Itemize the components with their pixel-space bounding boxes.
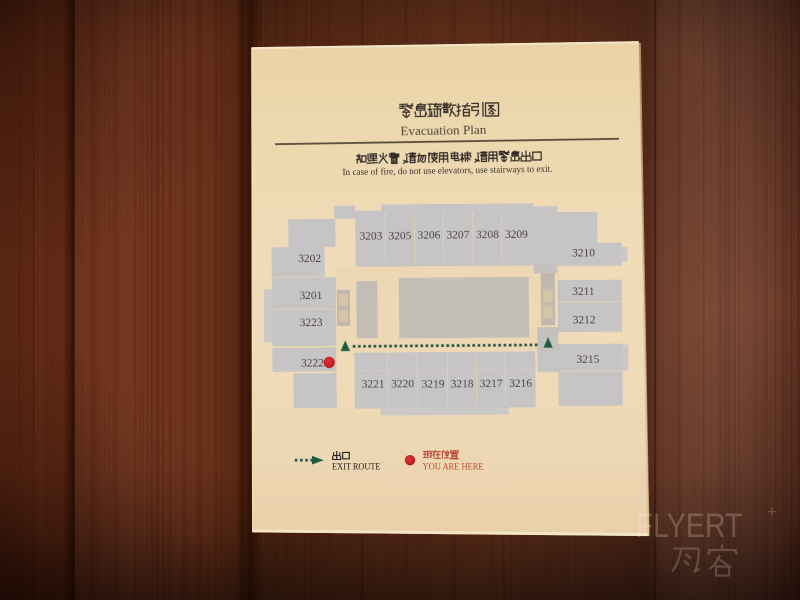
svg-text:3202: 3202 [298,253,321,265]
svg-text:3217: 3217 [480,378,503,390]
svg-text:3211: 3211 [572,286,595,298]
svg-text:Evacuation Plan: Evacuation Plan [400,123,487,138]
svg-text:3209: 3209 [505,229,528,241]
svg-text:YOU ARE HERE: YOU ARE HERE [423,463,484,473]
svg-text:+: + [767,504,776,521]
svg-text:3221: 3221 [362,379,385,391]
svg-text:3207: 3207 [446,229,469,241]
svg-text:3223: 3223 [300,317,323,329]
svg-text:3215: 3215 [576,354,599,366]
svg-text:3220: 3220 [391,378,414,390]
svg-text:3206: 3206 [417,230,440,242]
svg-text:3210: 3210 [572,247,595,259]
svg-text:3203: 3203 [359,231,382,243]
svg-text:3208: 3208 [476,229,499,241]
svg-text:3201: 3201 [299,290,322,302]
svg-text:3205: 3205 [388,230,411,242]
svg-text:3212: 3212 [573,314,596,326]
svg-text:EXIT ROUTE: EXIT ROUTE [332,463,381,473]
svg-text:3216: 3216 [509,378,532,390]
svg-text:3219: 3219 [422,379,445,391]
svg-text:3218: 3218 [451,378,474,390]
svg-text:3222: 3222 [301,358,324,370]
svg-text:FLYERT: FLYERT [636,507,743,545]
